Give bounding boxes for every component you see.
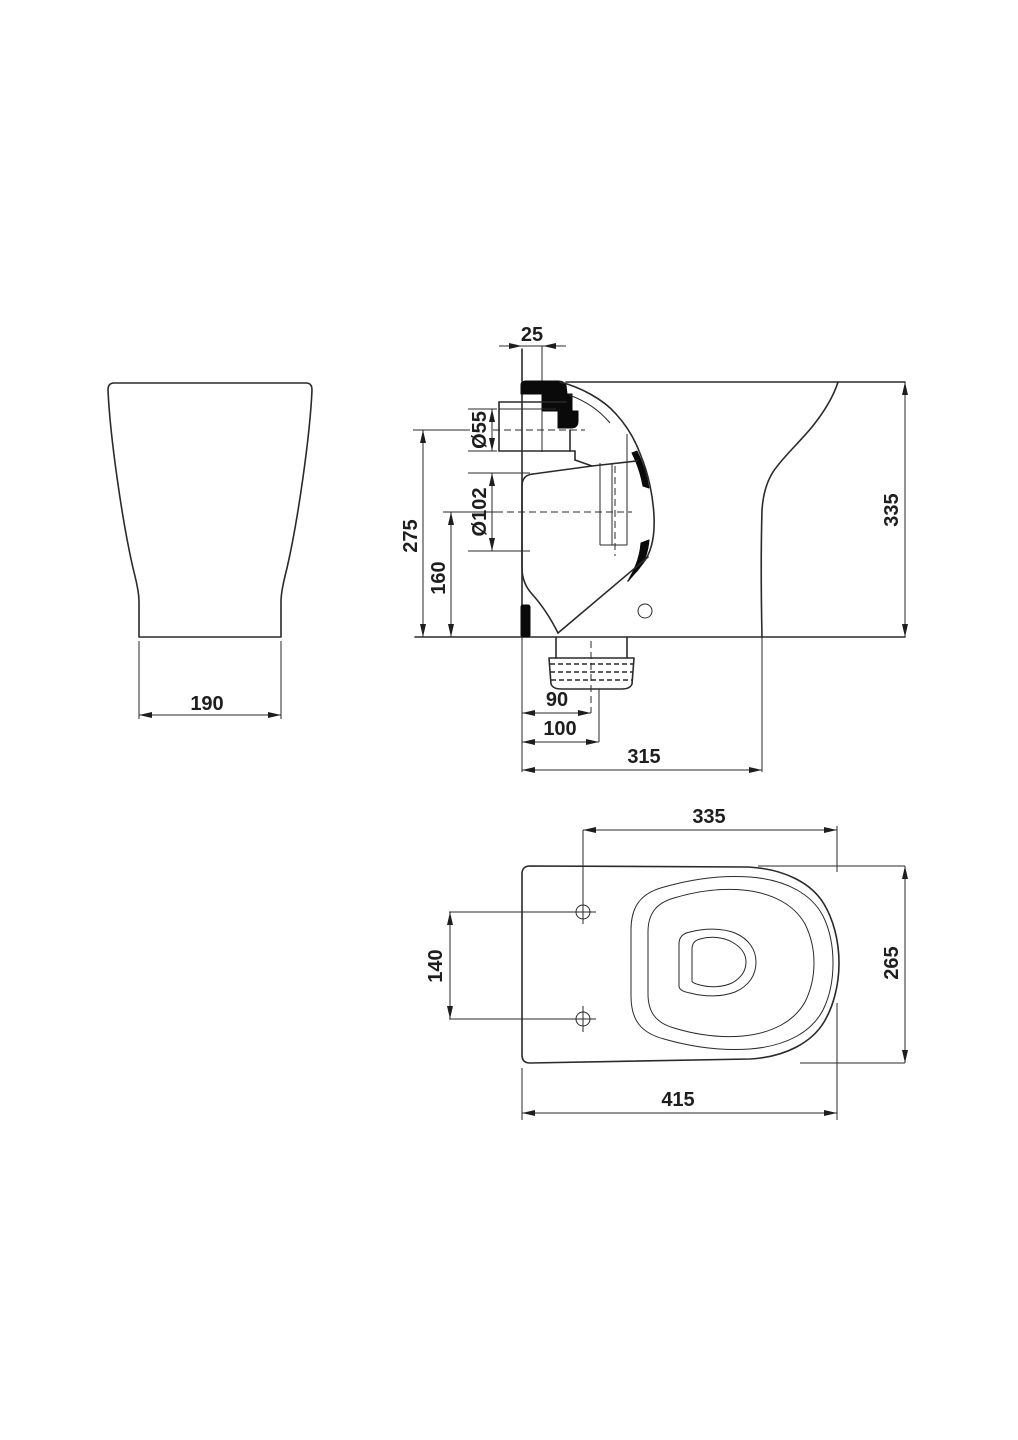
bowl-rim-contour — [648, 889, 814, 1036]
pedestal-outline — [108, 383, 312, 637]
shelf-step — [575, 460, 592, 466]
technical-drawing: 190 25 Ø55 — [0, 0, 1018, 1440]
seat-outer-contour — [631, 876, 833, 1049]
outlet-collar — [549, 658, 634, 689]
plan-view: 335 140 265 415 — [425, 806, 905, 1120]
drawing-canvas: 190 25 Ø55 — [0, 0, 1018, 1440]
shelf-edge — [592, 461, 637, 466]
dim-label-160: 160 — [428, 561, 450, 594]
pan-plan-outline — [522, 866, 839, 1063]
front-view: 190 — [108, 383, 312, 719]
dim-label-140: 140 — [425, 949, 447, 982]
inlet-flange-section-cut — [521, 381, 578, 428]
dim-label-335-height: 335 — [881, 493, 903, 526]
bowl-top-edge — [533, 466, 592, 474]
dim-label-335-plan: 335 — [692, 806, 725, 828]
sump-inner-contour — [692, 937, 746, 986]
back-wall-section-cut — [521, 605, 530, 637]
dim-label-25: 25 — [521, 324, 543, 346]
side-view: 25 Ø55 — [400, 324, 905, 772]
dim-label-265: 265 — [881, 946, 903, 979]
dim-label-d55: Ø55 — [469, 411, 491, 449]
dim-label-100: 100 — [543, 718, 576, 740]
fixing-hole-side — [638, 604, 652, 618]
dim-label-275: 275 — [400, 519, 422, 552]
dim-label-315: 315 — [627, 746, 660, 768]
dim-label-190: 190 — [190, 693, 223, 715]
pan-front-profile — [761, 382, 838, 637]
dim-label-90: 90 — [546, 689, 568, 711]
trapway-diagonal — [558, 557, 648, 633]
sump-outer-contour — [679, 929, 756, 996]
dim-label-415: 415 — [661, 1089, 694, 1111]
